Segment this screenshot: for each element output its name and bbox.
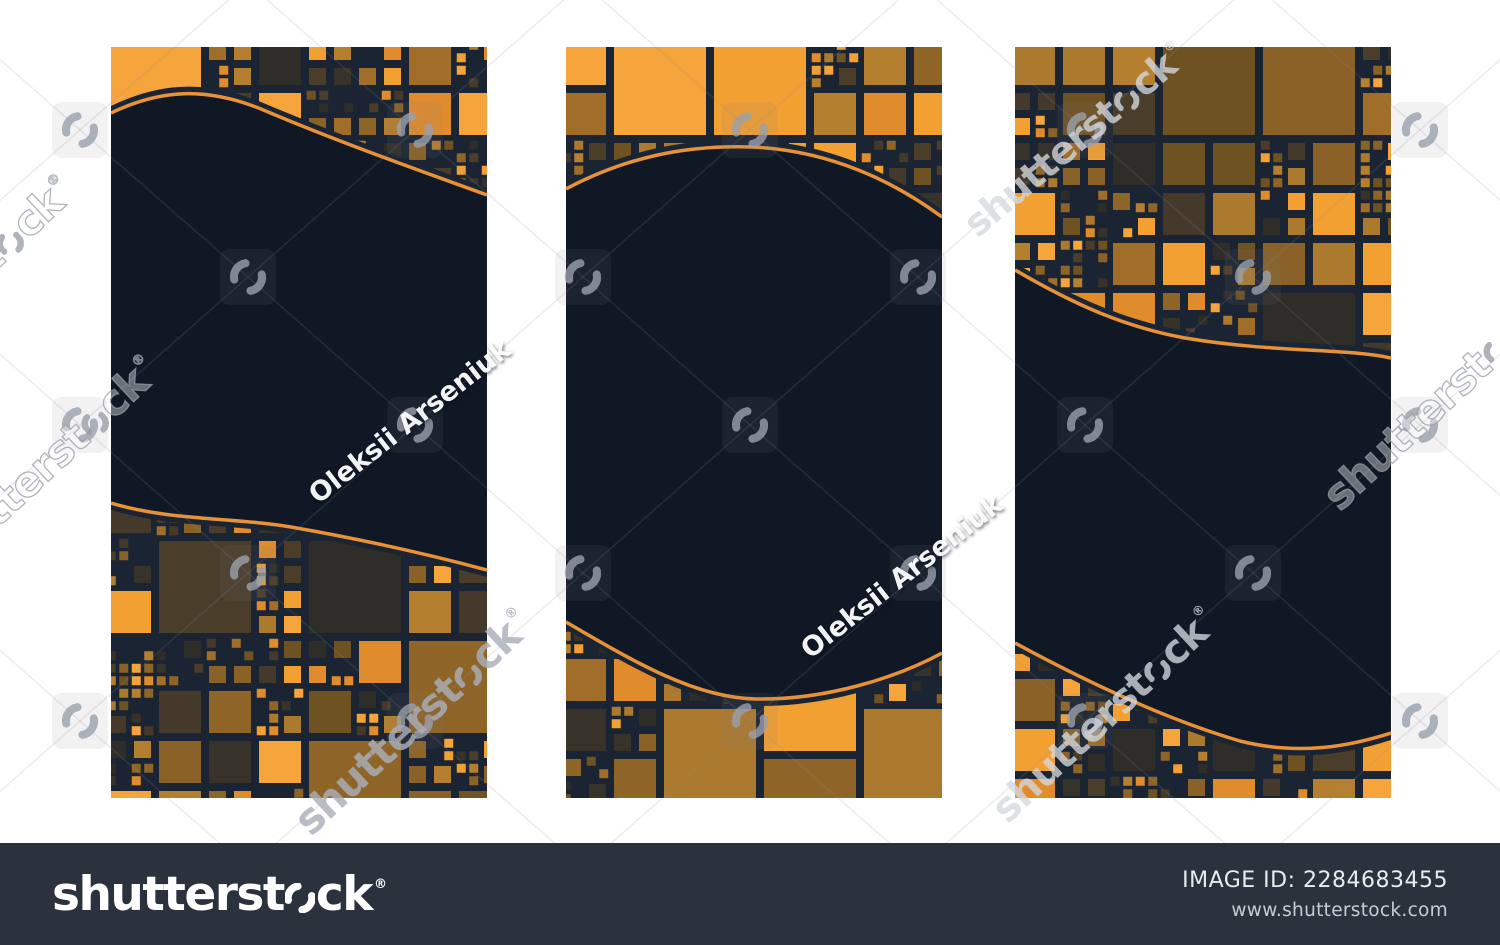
shutter-icon — [1483, 337, 1500, 366]
stock-image-preview: shutterstck®shutterstck®shutterstck®shut… — [0, 0, 1500, 945]
shutterstock-watermark-text: shutterstck® — [0, 170, 81, 409]
shutter-icon — [66, 116, 94, 144]
shutter-icon — [288, 886, 312, 910]
shutter-icon — [1406, 411, 1434, 439]
logo-text-prefix: shutterst — [52, 871, 284, 918]
shutter-icon — [1473, 326, 1500, 374]
shutter-icon — [0, 218, 34, 266]
shutterstock-logo: shutterst ck ® — [52, 871, 387, 918]
shutter-icon — [1406, 116, 1434, 144]
website-url: www.shutterstock.com — [1182, 900, 1448, 921]
shutter-icon — [81, 409, 110, 438]
story-banner-2 — [566, 47, 942, 798]
image-id: IMAGE ID: 2284683455 — [1182, 868, 1448, 893]
shutter-icon — [285, 874, 315, 921]
registered-mark: ® — [374, 878, 387, 891]
logo-text-suffix: ck — [316, 871, 372, 918]
image-meta: IMAGE ID: 2284683455 www.shutterstock.co… — [1182, 868, 1448, 921]
footer-bar: shutterst ck ® IMAGE ID: 2284683455 www.… — [0, 843, 1500, 945]
shutter-icon — [1406, 707, 1434, 735]
shutter-icon — [0, 229, 25, 258]
story-banner-3 — [1015, 47, 1391, 798]
shutter-icon — [66, 707, 94, 735]
shutter-icon — [66, 411, 94, 439]
story-banner-1 — [111, 47, 487, 798]
